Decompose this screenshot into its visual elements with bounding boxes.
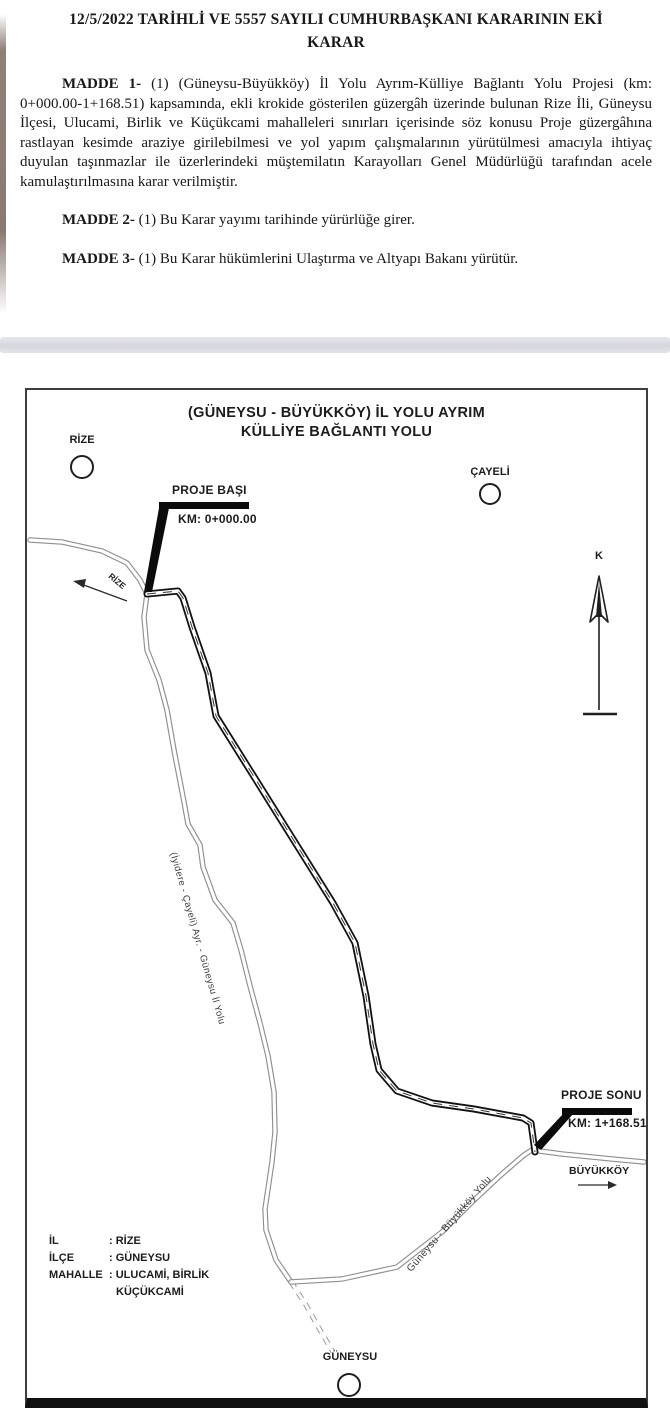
decree-title: 12/5/2022 TARİHLİ VE 5557 SAYILI CUMHURB… — [20, 8, 652, 54]
article-2-text: (1) Bu Karar yayımı tarihinde yürürlüğe … — [135, 212, 415, 228]
project-start-bar — [159, 502, 249, 509]
guneysu-place-label: GÜNEYSU — [312, 1351, 388, 1363]
decree-article-3: MADDE 3- (1) Bu Karar hükümlerini Ulaştı… — [20, 250, 652, 270]
rize-place-label: RİZE — [57, 434, 107, 446]
article-3-label: MADDE 3- — [62, 251, 135, 267]
route-sketch-map: (GÜNEYSU - BÜYÜKKÖY) İL YOLU AYRIM KÜLLİ… — [25, 388, 648, 1408]
left-road — [30, 540, 291, 1282]
location-info-block: İL : RİZE İLÇE : GÜNEYSU MAHALLE : ULUCA… — [49, 1233, 209, 1301]
buyukkoy-direction-arrow-icon — [578, 1181, 617, 1189]
info-label-mahalle: MAHALLE — [49, 1267, 109, 1284]
cayeli-city-marker — [480, 484, 500, 504]
decree-document: 12/5/2022 TARİHLİ VE 5557 SAYILI CUMHURB… — [20, 8, 652, 269]
buyukkoy-place-label: BÜYÜKKÖY — [569, 1165, 629, 1177]
info-value-il: : RİZE — [109, 1233, 141, 1250]
info-label-il: İL — [49, 1233, 109, 1250]
rize-city-marker — [71, 456, 93, 478]
north-label: K — [587, 550, 611, 562]
info-row-mahalle-cont: KÜÇÜKCAMİ — [49, 1284, 209, 1301]
scan-edge-shadow — [0, 14, 6, 314]
article-3-text: (1) Bu Karar hükümlerini Ulaştırma ve Al… — [135, 251, 518, 267]
cayeli-place-label: ÇAYELİ — [457, 466, 523, 478]
project-start-km: KM: 0+000.00 — [178, 512, 257, 526]
project-end-km: KM: 1+168.51 — [568, 1116, 647, 1130]
info-value-mahalle-cont: KÜÇÜKCAMİ — [109, 1284, 184, 1301]
info-row-il: İL : RİZE — [49, 1233, 209, 1250]
article-1-text: (1) (Güneysu-Büyükköy) İl Yolu Ayrım-Kül… — [20, 76, 652, 190]
info-row-mahalle: MAHALLE : ULUCAMİ, BİRLİK — [49, 1267, 209, 1284]
info-value-ilce: : GÜNEYSU — [109, 1250, 170, 1267]
project-start-label: PROJE BAŞI — [172, 483, 247, 497]
project-end-bar — [562, 1108, 632, 1115]
map-title-line2: KÜLLİYE BAĞLANTI YOLU — [27, 424, 646, 440]
info-row-ilce: İLÇE : GÜNEYSU — [49, 1250, 209, 1267]
decree-title-line2: KARAR — [20, 31, 652, 54]
project-end-label: PROJE SONU — [561, 1088, 642, 1102]
left-road-dashed-continuation — [291, 1282, 333, 1352]
info-label-empty — [49, 1284, 109, 1301]
info-value-mahalle: : ULUCAMİ, BİRLİK — [109, 1267, 209, 1284]
page-separator-band — [0, 337, 670, 353]
decree-article-2: MADDE 2- (1) Bu Karar yayımı tarihinde y… — [20, 211, 652, 231]
project-start-leader — [144, 508, 169, 592]
article-2-label: MADDE 2- — [62, 212, 135, 228]
decree-title-line1: 12/5/2022 TARİHLİ VE 5557 SAYILI CUMHURB… — [20, 8, 652, 31]
decree-article-1: MADDE 1- (1) (Güneysu-Büyükköy) İl Yolu … — [20, 75, 652, 192]
article-1-label: MADDE 1- — [62, 76, 141, 92]
map-title-line1: (GÜNEYSU - BÜYÜKKÖY) İL YOLU AYRIM — [27, 405, 646, 421]
info-label-ilce: İLÇE — [49, 1250, 109, 1267]
guneysu-city-marker — [338, 1374, 360, 1396]
north-arrow-icon — [583, 576, 617, 714]
